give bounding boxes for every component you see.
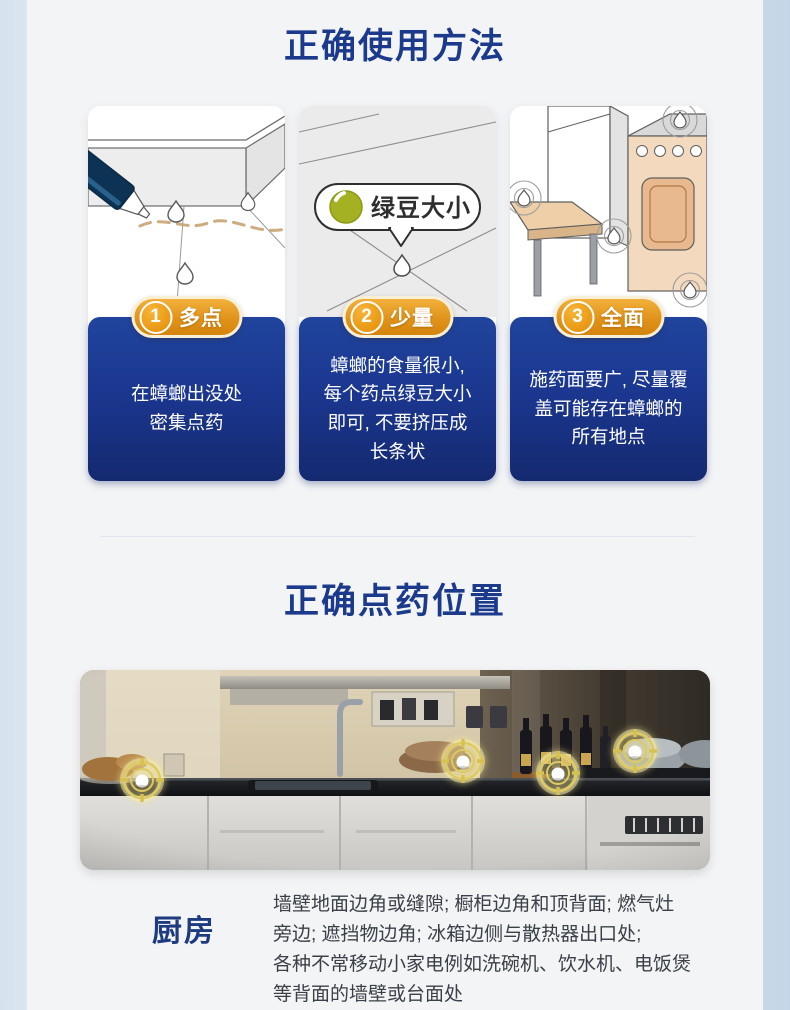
usage-steps-row: 1 多点 在蟑螂出没处 密集点药	[88, 106, 708, 481]
floor-tile-drawing: 绿豆大小	[299, 106, 496, 317]
step1-illustration	[88, 106, 285, 317]
step-badge: 1 多点	[131, 296, 242, 338]
bubble-label: 绿豆大小	[371, 194, 471, 222]
usage-section-title: 正确使用方法	[0, 0, 790, 69]
step-description-panel: 在蟑螂出没处 密集点药	[88, 317, 285, 481]
step-card-3: 3 全面 施药面要广, 尽量覆 盖可能存在蟑螂的 所有地点	[510, 106, 707, 481]
kitchen-photo	[80, 670, 710, 870]
position-section-title: 正确点药位置	[0, 573, 790, 624]
step-number: 1	[139, 301, 172, 334]
step-description: 施药面要广, 尽量覆 盖可能存在蟑螂的 所有地点	[525, 340, 691, 458]
step-card-1: 1 多点 在蟑螂出没处 密集点药	[88, 106, 285, 481]
step-description-panel: 蟑螂的食量很小, 每个药点绿豆大小 即可, 不要挤压成 长条状	[299, 317, 496, 481]
step3-illustration	[510, 106, 707, 317]
location-description: 墙壁地面边角或缝隙; 橱柜边角和顶背面; 燃气灶 旁边; 遮挡物边角; 冰箱边侧…	[273, 884, 691, 1010]
location-row: 厨房 墙壁地面边角或缝隙; 橱柜边角和顶背面; 燃气灶 旁边; 遮挡物边角; 冰…	[80, 884, 710, 1010]
step-card-2: 绿豆大小 2 少量 蟑螂的食量很小, 每个药点绿豆大小 即可, 不要挤压成 长条…	[299, 106, 496, 481]
step-number: 3	[561, 301, 594, 334]
kitchen-corner-drawing	[510, 106, 707, 317]
green-bean-icon	[330, 191, 362, 223]
step-description: 在蟑螂出没处 密集点药	[127, 354, 246, 443]
section-divider	[100, 536, 695, 537]
step-badge: 3 全面	[553, 296, 664, 338]
step-number: 2	[350, 301, 383, 334]
step2-illustration: 绿豆大小	[299, 106, 496, 317]
step-label: 全面	[601, 302, 645, 332]
step-description-panel: 施药面要广, 尽量覆 盖可能存在蟑螂的 所有地点	[510, 317, 707, 481]
step-label: 多点	[179, 302, 223, 332]
step-label: 少量	[390, 302, 434, 332]
kitchen-photo-art	[80, 670, 710, 870]
step-badge: 2 少量	[342, 296, 453, 338]
step-description: 蟑螂的食量很小, 每个药点绿豆大小 即可, 不要挤压成 长条状	[319, 326, 475, 473]
wall-baseboard-drawing	[88, 106, 285, 317]
location-label: 厨房	[80, 884, 273, 1010]
